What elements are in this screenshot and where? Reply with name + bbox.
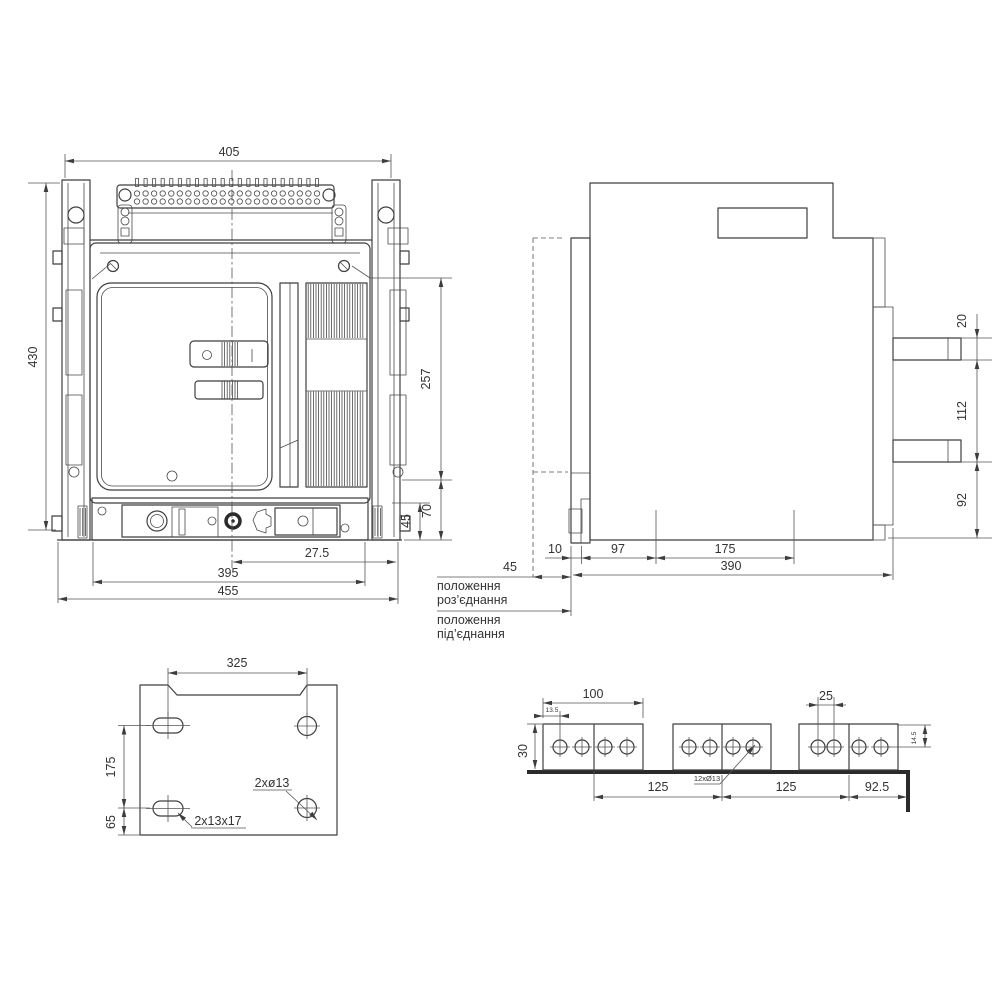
mounting-plate xyxy=(140,685,337,835)
channel-hole xyxy=(378,207,394,223)
dim-pitch-1: 125 xyxy=(648,780,669,794)
cover-hole xyxy=(167,471,177,481)
dim-base-inner: 45 xyxy=(399,514,413,528)
push-button xyxy=(147,511,167,531)
side-trim xyxy=(280,283,298,487)
secondary-terminal-block xyxy=(117,185,334,208)
channel-hole xyxy=(68,207,84,223)
side-body xyxy=(590,183,873,540)
padlock-bracket xyxy=(253,509,271,533)
dim-cutout-width: 325 xyxy=(227,656,248,670)
side-bolt xyxy=(52,516,62,531)
dim-depth: 390 xyxy=(721,559,742,573)
label-slot-holes: 2x13x17 xyxy=(194,814,241,828)
dim-bar-width: 30 xyxy=(516,744,530,758)
racking-slider xyxy=(195,381,263,399)
dim-overall-height: 430 xyxy=(26,347,40,368)
dim-plate-hole-spacing: 175 xyxy=(104,757,118,778)
right-channel xyxy=(372,180,400,540)
front-cover xyxy=(97,283,272,490)
dim-hole-spacing: 175 xyxy=(715,542,736,556)
dim-busbar-bottom: 92 xyxy=(955,493,969,507)
terminal-screw xyxy=(323,189,335,201)
label-round-holes: 2xø13 xyxy=(255,776,290,790)
dim-hole-edge: 13.5 xyxy=(546,707,559,714)
dim-end-offset: 92.5 xyxy=(865,780,889,794)
terminal-screw xyxy=(119,189,131,201)
side-bolt xyxy=(53,308,62,321)
dim-hole-top: 14.5 xyxy=(911,731,918,744)
position-indicator xyxy=(190,341,268,367)
front-plate xyxy=(571,238,590,543)
label-busbar-holes: 12xØ13 xyxy=(694,774,720,783)
dim-body-height: 257 xyxy=(419,369,433,390)
dim-pad-width: 100 xyxy=(583,687,604,701)
dim-hole-pitch: 25 xyxy=(819,689,833,703)
side-bolt xyxy=(53,251,62,264)
control-strip-inner xyxy=(122,505,340,537)
breaker-body xyxy=(90,243,370,503)
dim-total-width: 455 xyxy=(218,584,239,598)
dim-base-height: 70 xyxy=(420,504,434,518)
dim-inner-width: 395 xyxy=(218,566,239,580)
control-strip xyxy=(92,498,368,540)
dim-plate-edge-offset: 65 xyxy=(104,815,118,829)
busbar-view-drawing xyxy=(527,724,910,812)
dim-travel: 45 xyxy=(503,560,517,574)
mounting-plate-drawing xyxy=(140,685,337,835)
side-view-drawing xyxy=(533,183,961,577)
dim-center-offset: 27.5 xyxy=(305,546,329,560)
dim-front-gap: 10 xyxy=(548,542,562,556)
dim-busbar-thickness: 20 xyxy=(955,314,969,328)
side-bolt xyxy=(400,251,409,264)
label-connected-position-2: під’єднання xyxy=(437,627,505,641)
side-bolt xyxy=(400,308,409,321)
top-block xyxy=(718,208,807,238)
terminal-support xyxy=(873,307,893,525)
label-disconnected-position-1: положення xyxy=(437,579,501,593)
circuit-breaker-dimension-drawing: 405 430 257 70 45 27.5 395 455 20 112 92… xyxy=(0,0,1000,1000)
label-connected-position-1: положення xyxy=(437,613,501,627)
dim-pitch-2: 125 xyxy=(776,780,797,794)
dim-overall-width: 405 xyxy=(219,145,240,159)
dim-busbar-spacing: 112 xyxy=(955,401,969,421)
dimension-texts: 405 430 257 70 45 27.5 395 455 20 112 92… xyxy=(26,145,969,829)
indicator-window xyxy=(275,508,337,535)
technical-drawing-page: 405 430 257 70 45 27.5 395 455 20 112 92… xyxy=(0,0,1000,1000)
label-disconnected-position-2: роз’єднання xyxy=(437,593,507,607)
dim-hole-offset: 97 xyxy=(611,542,625,556)
front-view-drawing xyxy=(52,170,410,568)
upper-busbar xyxy=(893,338,961,360)
lower-busbar xyxy=(893,440,961,462)
